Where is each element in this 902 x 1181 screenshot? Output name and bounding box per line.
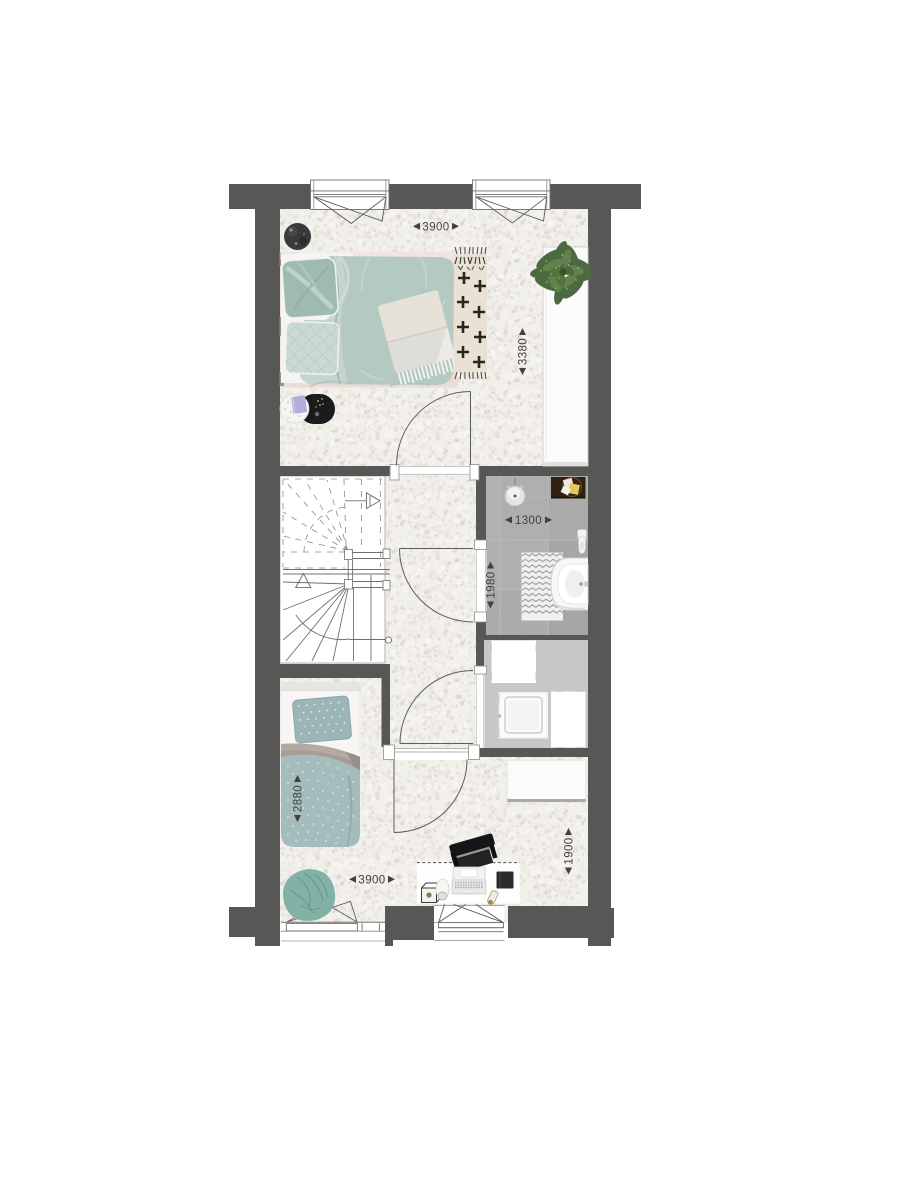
- svg-text:3900: 3900: [422, 222, 449, 234]
- svg-text:1980: 1980: [486, 571, 498, 598]
- svg-text:3900: 3900: [358, 875, 385, 887]
- svg-text:1900: 1900: [564, 837, 576, 864]
- svg-text:1300: 1300: [515, 515, 542, 527]
- svg-text:3380: 3380: [518, 338, 530, 365]
- svg-text:2880: 2880: [293, 785, 305, 812]
